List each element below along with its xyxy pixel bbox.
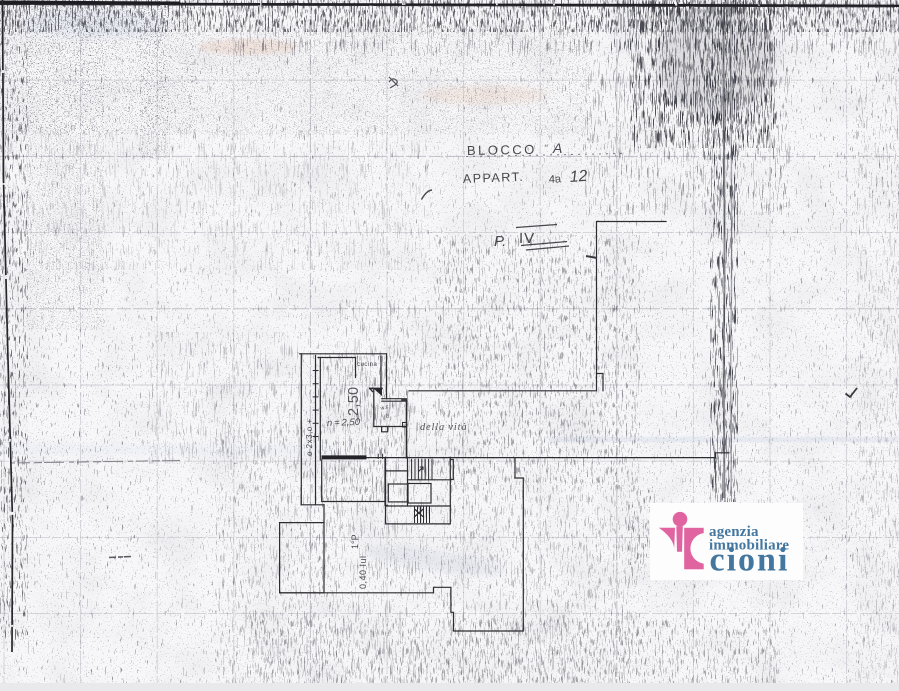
svg-text:12: 12 (569, 168, 588, 186)
svg-text:A: A (552, 140, 562, 156)
svg-text:“: “ (545, 143, 548, 153)
svg-text:APPART.: APPART. (463, 170, 525, 186)
svg-text:cioni: cioni (710, 542, 790, 579)
svg-text:8: 8 (386, 414, 389, 420)
svg-text:0,40 Iul: 0,40 Iul (358, 555, 368, 589)
svg-text:n = 2,50: n = 2,50 (327, 417, 361, 429)
svg-text:P.: P. (494, 233, 506, 250)
svg-text:della vità: della vità (420, 422, 467, 433)
svg-text:2,50: 2,50 (346, 387, 362, 416)
svg-text:cucina: cucina (357, 362, 378, 368)
svg-text:4a: 4a (549, 173, 563, 186)
svg-text:1°P: 1°P (350, 534, 360, 549)
svg-text:o 2x3,o +: o 2x3,o + (305, 418, 314, 456)
